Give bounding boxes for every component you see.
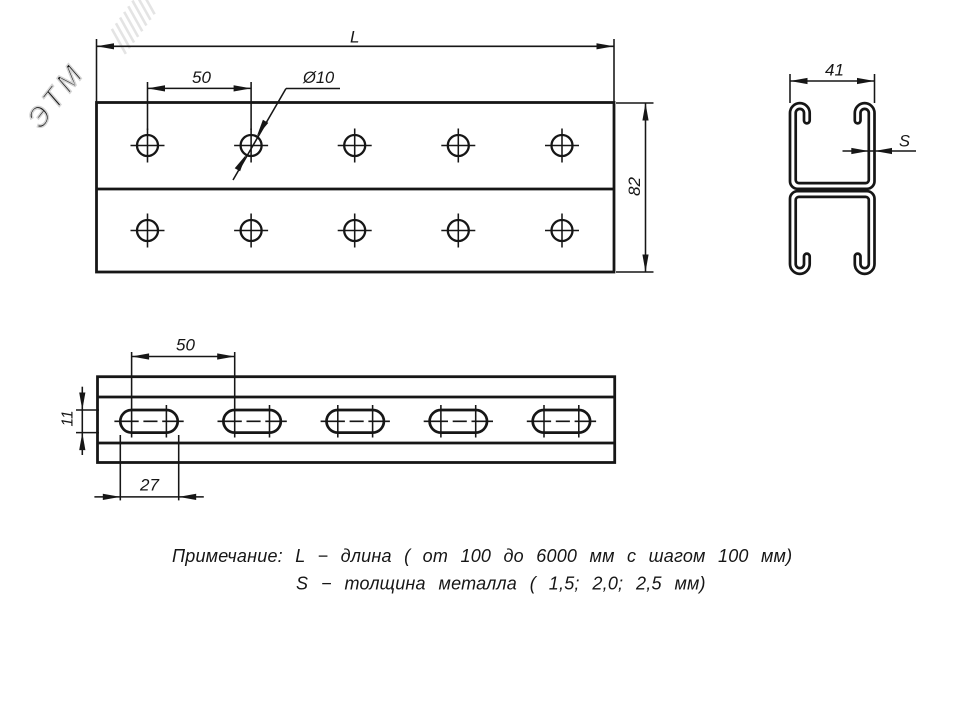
svg-text:S: S bbox=[899, 133, 910, 151]
svg-text:41: 41 bbox=[825, 61, 844, 80]
svg-text:82: 82 bbox=[625, 177, 644, 196]
svg-text:L: L bbox=[350, 28, 359, 47]
svg-text:27: 27 bbox=[139, 476, 159, 495]
svg-text:Ø10: Ø10 bbox=[302, 69, 335, 87]
svg-text:50: 50 bbox=[176, 336, 195, 355]
svg-text:11: 11 bbox=[60, 410, 77, 426]
svg-text:Примечание: L − длина ( от 100: Примечание: L − длина ( от 100 до 6000 м… bbox=[172, 546, 792, 566]
svg-text:50: 50 bbox=[192, 68, 211, 87]
svg-text:S − толщина металла ( 1,5; 2,0: S − толщина металла ( 1,5; 2,0; 2,5 мм) bbox=[296, 574, 706, 594]
svg-text:ЭТМ: ЭТМ bbox=[21, 57, 91, 134]
